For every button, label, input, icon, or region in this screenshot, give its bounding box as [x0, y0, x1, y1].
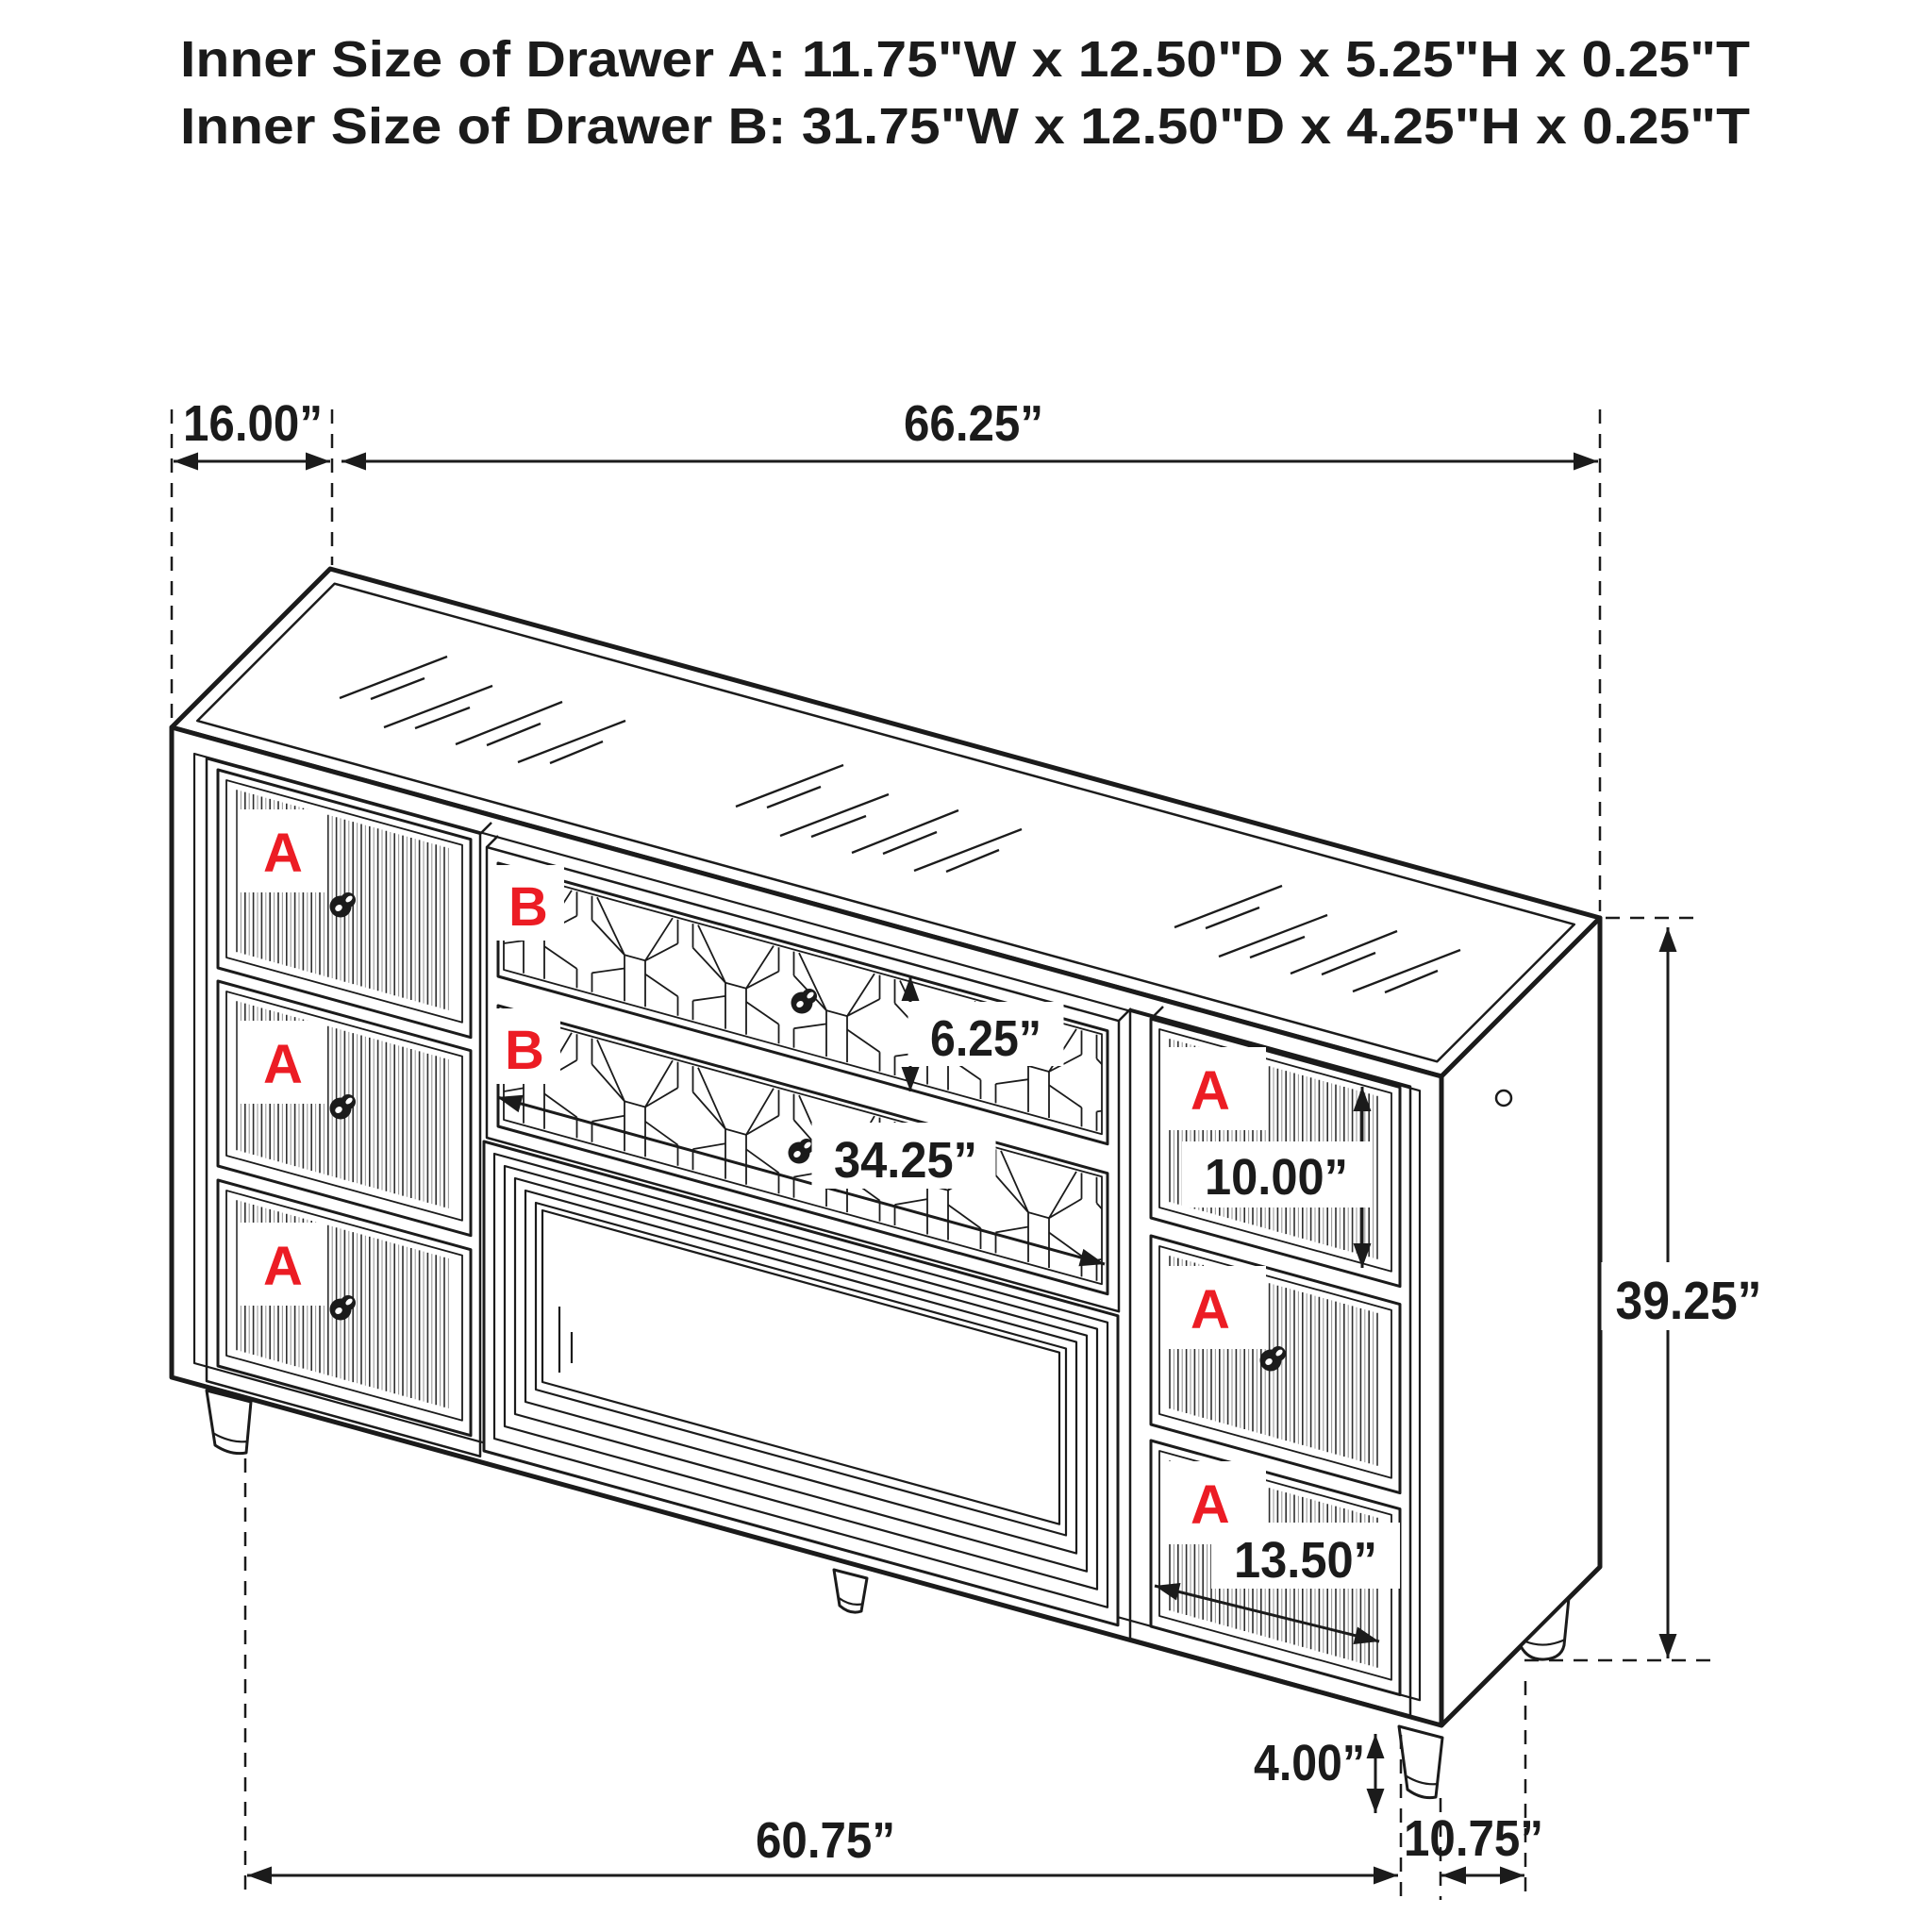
svg-text:60.75”: 60.75” — [756, 1812, 895, 1869]
svg-text:A: A — [263, 1034, 303, 1095]
svg-text:A: A — [1191, 1279, 1230, 1341]
svg-text:A: A — [1191, 1060, 1230, 1122]
svg-text:34.25”: 34.25” — [834, 1132, 977, 1189]
svg-text:4.00”: 4.00” — [1254, 1735, 1365, 1791]
svg-text:A: A — [263, 823, 303, 884]
svg-text:13.50”: 13.50” — [1234, 1532, 1377, 1589]
svg-text:10.00”: 10.00” — [1205, 1149, 1348, 1206]
svg-text:A: A — [263, 1236, 303, 1297]
svg-text:6.25”: 6.25” — [930, 1010, 1041, 1067]
svg-text:66.25”: 66.25” — [904, 395, 1043, 452]
svg-text:39.25”: 39.25” — [1616, 1271, 1762, 1331]
svg-text:16.00”: 16.00” — [183, 395, 323, 452]
svg-text:10.75”: 10.75” — [1404, 1810, 1543, 1867]
svg-text:Inner Size of Drawer A: 11.75": Inner Size of Drawer A: 11.75"W x 12.50"… — [180, 31, 1750, 88]
svg-text:B: B — [508, 876, 548, 938]
svg-text:B: B — [505, 1020, 544, 1081]
svg-text:Inner Size of Drawer B: 31.75": Inner Size of Drawer B: 31.75"W x 12.50"… — [180, 98, 1750, 155]
